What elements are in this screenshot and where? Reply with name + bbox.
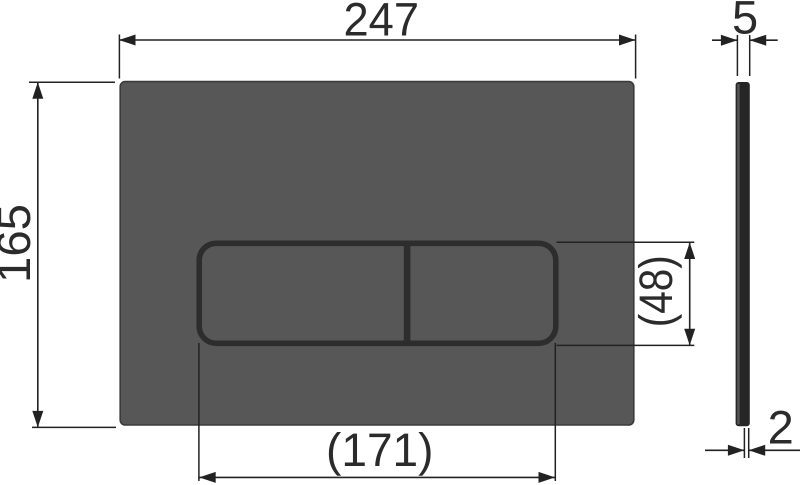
svg-text:165: 165 xyxy=(0,204,40,283)
svg-text:(48): (48) xyxy=(629,255,682,327)
svg-text:(171): (171) xyxy=(326,423,434,476)
svg-text:2: 2 xyxy=(768,401,794,454)
svg-text:247: 247 xyxy=(344,0,420,46)
svg-text:5: 5 xyxy=(732,0,758,44)
